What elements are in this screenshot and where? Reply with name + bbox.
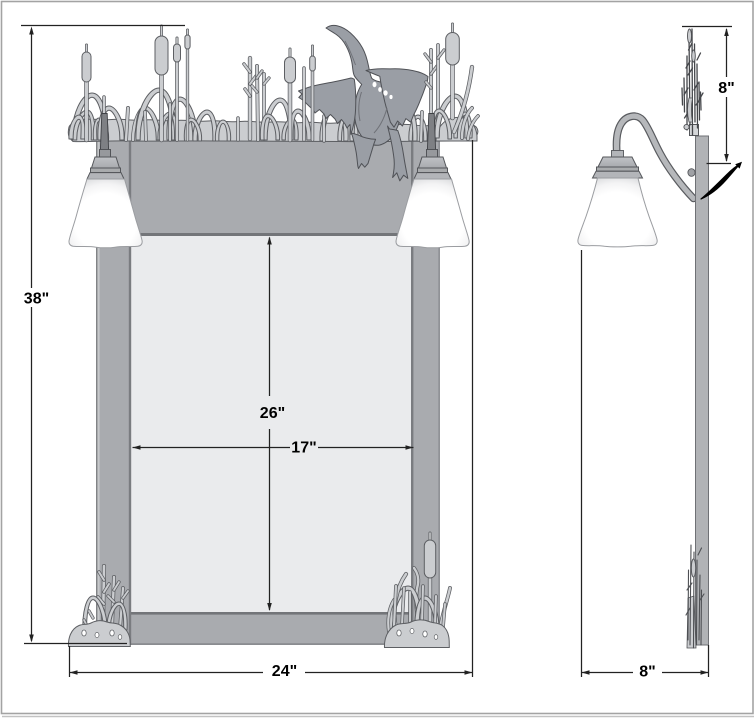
svg-text:26": 26" bbox=[260, 405, 285, 422]
svg-text:38": 38" bbox=[24, 291, 49, 308]
svg-text:8": 8" bbox=[718, 80, 734, 97]
svg-text:8": 8" bbox=[639, 664, 655, 681]
svg-text:24": 24" bbox=[272, 663, 297, 680]
svg-text:17": 17" bbox=[291, 440, 316, 457]
